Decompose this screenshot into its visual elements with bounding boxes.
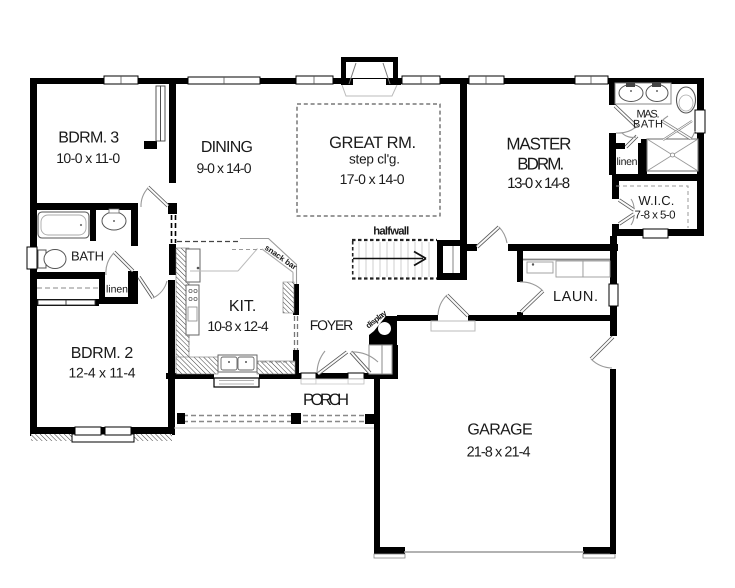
svg-text:10-8 x 12-4: 10-8 x 12-4 bbox=[207, 318, 269, 334]
svg-text:halfwall: halfwall bbox=[373, 226, 409, 238]
svg-text:LAUN.: LAUN. bbox=[553, 289, 598, 305]
svg-text:9-0 x 14-0: 9-0 x 14-0 bbox=[197, 160, 252, 176]
svg-text:GREAT RM.: GREAT RM. bbox=[329, 134, 416, 152]
svg-text:BATH: BATH bbox=[633, 118, 663, 130]
svg-text:7-8 x 5-0: 7-8 x 5-0 bbox=[635, 210, 676, 222]
svg-text:17-0 x 14-0: 17-0 x 14-0 bbox=[340, 171, 405, 187]
svg-text:BATH: BATH bbox=[71, 249, 104, 264]
svg-text:W.I.C.: W.I.C. bbox=[638, 193, 674, 208]
svg-text:12-4 x 11-4: 12-4 x 11-4 bbox=[69, 365, 136, 381]
svg-text:MASTER: MASTER bbox=[506, 135, 571, 154]
svg-text:BDRM. 2: BDRM. 2 bbox=[71, 345, 134, 362]
svg-text:13-0 x 14-8: 13-0 x 14-8 bbox=[507, 175, 570, 192]
svg-text:GARAGE: GARAGE bbox=[467, 422, 532, 439]
svg-text:10-0 x 11-0: 10-0 x 11-0 bbox=[56, 150, 120, 166]
svg-text:21-8 x 21-4: 21-8 x 21-4 bbox=[467, 445, 531, 461]
svg-text:KIT.: KIT. bbox=[229, 298, 257, 315]
svg-text:linen: linen bbox=[617, 156, 638, 168]
svg-text:FOYER: FOYER bbox=[310, 317, 354, 333]
svg-text:BDRM.: BDRM. bbox=[517, 154, 564, 173]
svg-text:PORCH: PORCH bbox=[303, 391, 349, 409]
svg-text:linen: linen bbox=[106, 284, 128, 296]
svg-text:BDRM. 3: BDRM. 3 bbox=[58, 129, 119, 146]
svg-text:step cl'g.: step cl'g. bbox=[349, 152, 400, 167]
svg-text:DINING: DINING bbox=[201, 139, 253, 156]
